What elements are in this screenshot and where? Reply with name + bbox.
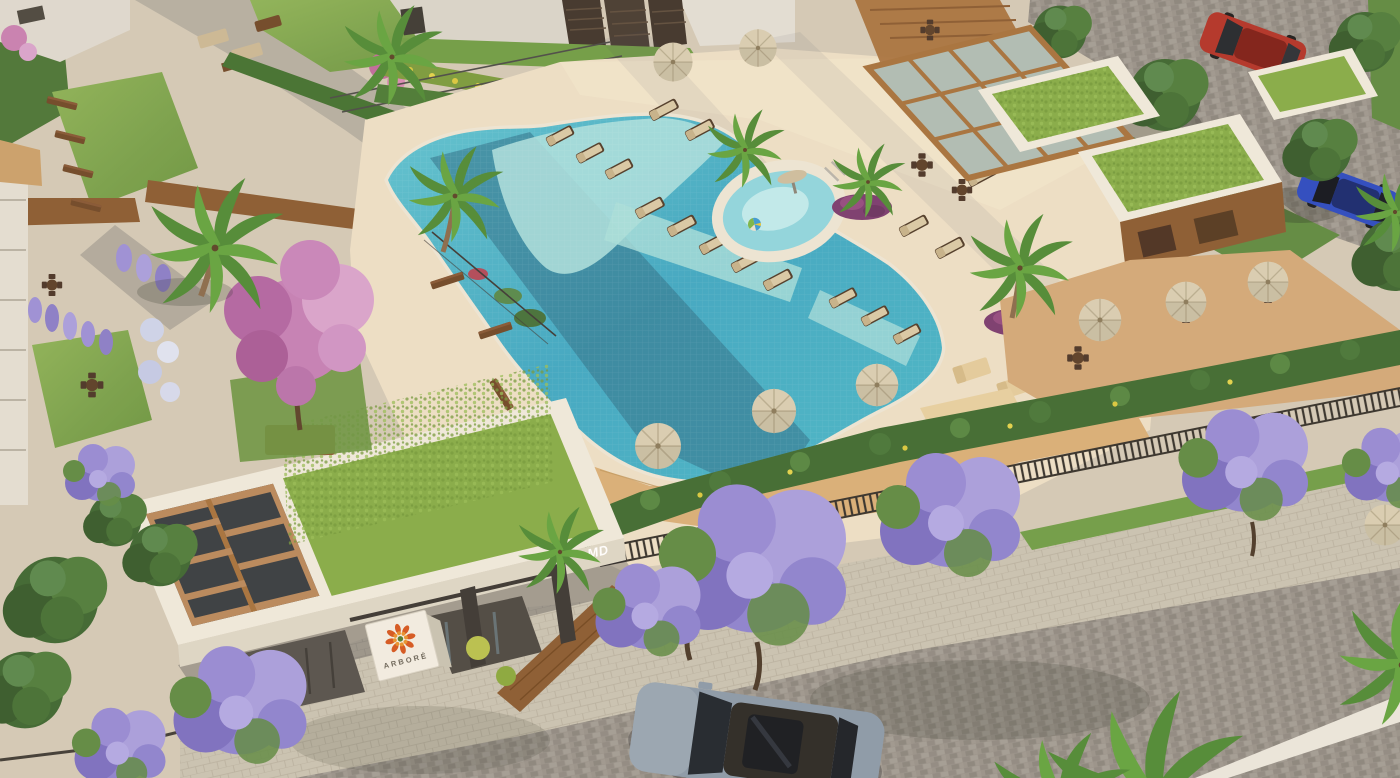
render-canvas: MD ARBORÉ [0,0,1400,778]
warm-light-overlay [0,0,1400,778]
aerial-condo-render: MD ARBORÉ [0,0,1400,778]
